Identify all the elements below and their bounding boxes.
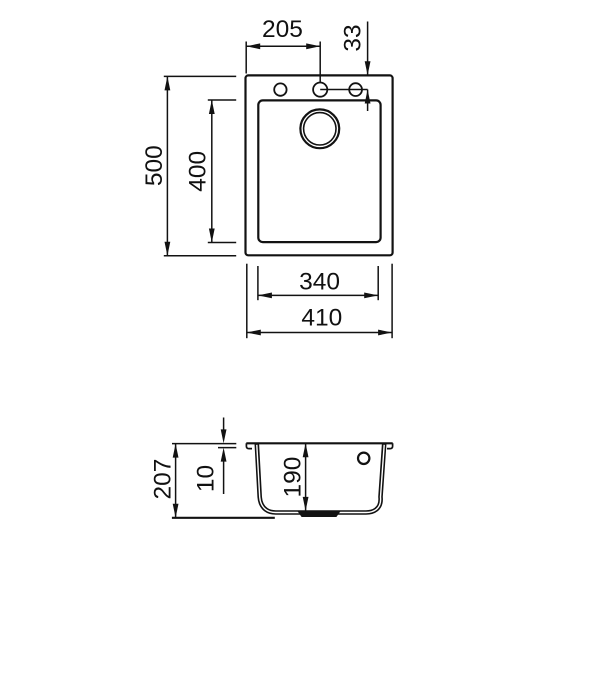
svg-text:500: 500: [141, 145, 168, 186]
svg-text:10: 10: [193, 465, 220, 492]
svg-text:400: 400: [184, 151, 211, 192]
svg-text:205: 205: [262, 16, 303, 43]
svg-text:340: 340: [299, 268, 340, 295]
svg-text:207: 207: [149, 459, 176, 500]
svg-text:410: 410: [301, 304, 342, 331]
svg-text:190: 190: [280, 457, 307, 498]
svg-text:33: 33: [340, 24, 367, 51]
